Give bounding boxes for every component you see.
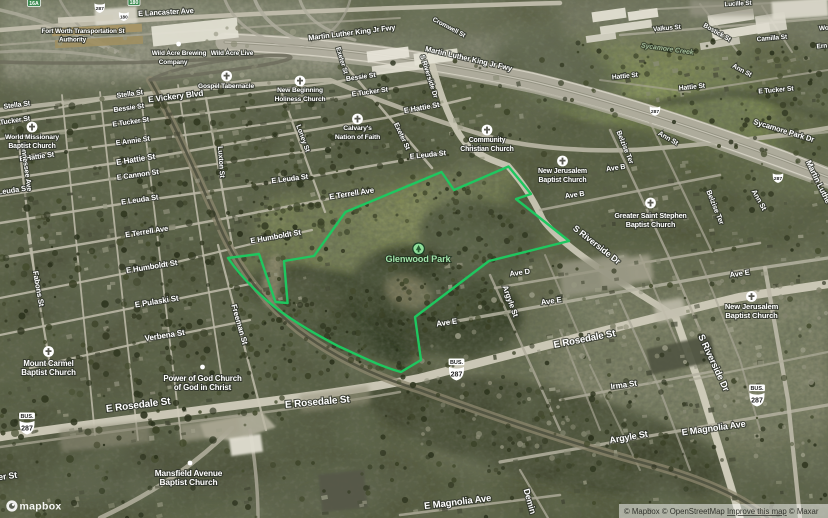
svg-text:287: 287: [451, 371, 463, 378]
svg-text:Mount Carmel: Mount Carmel: [23, 359, 73, 368]
svg-text:New Jerusalem: New Jerusalem: [725, 302, 779, 311]
svg-text:Baptist Church: Baptist Church: [626, 220, 675, 229]
svg-text:Baptist Church: Baptist Church: [21, 368, 76, 377]
svg-text:Wo: Wo: [819, 25, 828, 33]
svg-text:Community: Community: [469, 137, 506, 144]
svg-text:287: 287: [751, 397, 763, 404]
svg-text:Fort Worth Transportation St: Fort Worth Transportation St: [41, 28, 125, 35]
svg-text:New Jerusalem: New Jerusalem: [538, 168, 587, 175]
svg-text:Gospel Tabernacle: Gospel Tabernacle: [198, 83, 254, 90]
svg-text:16A: 16A: [29, 1, 39, 7]
svg-text:180: 180: [120, 14, 128, 19]
svg-text:Company: Company: [159, 59, 188, 66]
svg-text:Authority: Authority: [59, 37, 87, 44]
svg-text:BUS.: BUS.: [450, 360, 463, 366]
svg-text:BUS.: BUS.: [751, 386, 764, 392]
svg-text:Greater Saint Stephen: Greater Saint Stephen: [614, 211, 686, 220]
svg-text:Baptist Church: Baptist Church: [8, 143, 55, 150]
svg-text:BUS.: BUS.: [21, 414, 34, 420]
svg-text:Baptist Church: Baptist Church: [160, 477, 218, 487]
svg-text:Wild Acre Live: Wild Acre Live: [211, 50, 254, 57]
svg-text:287: 287: [774, 176, 783, 182]
svg-text:© Mapbox © OpenStreetMap Impro: © Mapbox © OpenStreetMap Improve this ma…: [624, 507, 819, 516]
svg-text:Nation of Faith: Nation of Faith: [335, 134, 380, 141]
svg-text:Holiness Church: Holiness Church: [275, 96, 326, 103]
svg-text:287: 287: [21, 425, 33, 432]
svg-text:mapbox: mapbox: [20, 501, 62, 513]
svg-text:Baptist Church: Baptist Church: [725, 311, 778, 320]
svg-text:Baptist Church: Baptist Church: [538, 177, 586, 184]
svg-text:180: 180: [130, 0, 139, 6]
svg-text:New Beginning: New Beginning: [277, 87, 323, 94]
svg-text:Ern: Ern: [816, 43, 827, 51]
svg-text:Wild Acre Brewing: Wild Acre Brewing: [152, 50, 207, 57]
svg-text:Glenwood Park: Glenwood Park: [386, 254, 452, 264]
svg-text:287: 287: [651, 109, 660, 115]
svg-text:Christian Church: Christian Church: [460, 146, 514, 153]
svg-text:287: 287: [96, 6, 105, 12]
svg-text:Calvary's: Calvary's: [343, 125, 372, 132]
svg-text:of God in Christ: of God in Christ: [174, 383, 232, 392]
svg-text:World Missionary: World Missionary: [5, 134, 59, 141]
svg-text:Power of God Church: Power of God Church: [163, 374, 242, 383]
